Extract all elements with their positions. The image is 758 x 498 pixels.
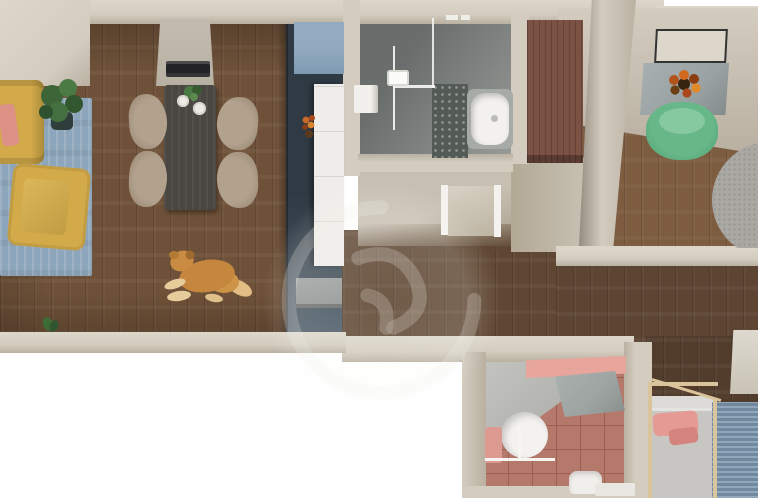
bathtub-drain — [491, 115, 498, 122]
desk-flowers — [663, 68, 705, 100]
entry-floor — [511, 158, 585, 252]
bathtub — [467, 89, 513, 149]
ensuite-partition — [555, 371, 625, 417]
bathroom-shelf — [354, 85, 378, 113]
wall-frame — [654, 29, 728, 63]
shower-fixture — [387, 70, 409, 86]
shower-glass-line — [432, 18, 434, 88]
bathtub-basin — [471, 93, 509, 145]
dog-lying-on-floor — [162, 246, 256, 312]
yellow-armchair — [7, 163, 92, 251]
shower-glass-line — [393, 46, 395, 130]
corridor-floor — [556, 262, 758, 342]
bedroom-blue-rug — [712, 402, 758, 498]
potted-plant — [34, 74, 86, 136]
canopy-frame-post — [713, 398, 717, 498]
corridor-top-wall-overlap — [556, 248, 758, 266]
wall-toiletries — [446, 15, 458, 20]
floor-plan-render — [0, 0, 758, 498]
corridor-end-wall — [730, 330, 758, 394]
watermark-logo — [264, 184, 499, 416]
wall-toiletries — [461, 15, 470, 20]
ensuite-tray — [595, 483, 635, 496]
kitchen-backsplash-wall — [294, 22, 344, 74]
kitchen-flowers — [300, 112, 318, 142]
green-armchair-seat — [659, 108, 705, 134]
armchair-seat — [20, 178, 71, 236]
plate — [193, 102, 206, 115]
tv-on-sideboard — [166, 61, 210, 77]
wardrobe — [527, 20, 583, 163]
green-armchair — [646, 102, 718, 160]
canopy-frame-post — [648, 382, 652, 498]
plate — [177, 95, 189, 107]
towel-rail — [518, 427, 521, 461]
floor-leaf-plant — [42, 314, 60, 334]
bathroom-deco-tile-strip — [432, 84, 468, 158]
